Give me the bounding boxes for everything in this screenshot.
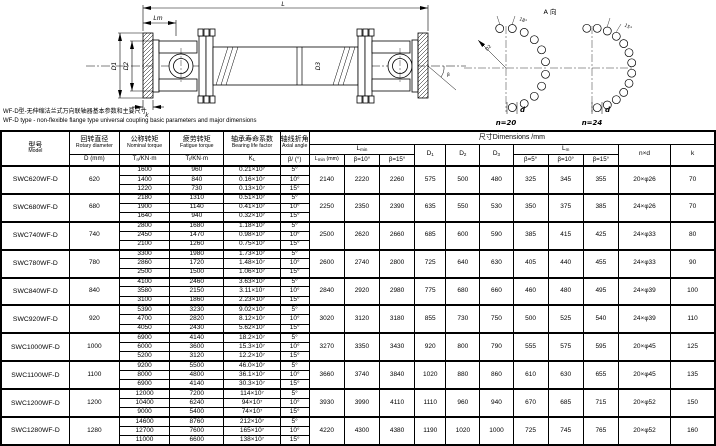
k-cell: 90 [671,250,715,278]
lm-b5-cell: 500 [513,305,548,333]
caption-chinese: WF-D型-无伸缩法兰式万向联轴器基本参数和主要尺寸 [3,108,147,116]
fatigue-torque-cell: 730 [170,185,224,194]
header-nominal-torque: 公称转矩 Nominal torque [119,131,169,154]
axial-angle-cell: 5° [280,333,309,342]
tube [213,47,358,85]
axial-angle-cell: 10° [280,259,309,268]
lm-b10-cell: 375 [548,194,583,222]
bearing-life-factor-cell: 1.73×10⁷ [224,250,280,259]
d3-cell: 590 [480,222,513,250]
model-cell: SWC740WF-D [1,222,69,250]
lm-b10-cell: 685 [548,389,583,417]
nominal-torque-cell: 2180 [119,194,169,203]
bearing-life-factor-cell: 36.1×10⁷ [224,371,280,380]
lmin-b15-cell: 4380 [380,417,415,445]
header-d2: D2 [446,144,480,166]
bearing-life-factor-cell: 3.11×10⁷ [224,287,280,296]
header-bearing-symbol: KL [224,154,280,166]
rotary-diameter-cell: 680 [69,194,119,222]
d3-cell: 1000 [480,417,513,445]
lmin-cell: 3270 [309,333,344,361]
header-row-1: 型号 Model 回转直径 Rotary diameter 公称转矩 Nomin… [1,131,715,144]
k-cell: 160 [671,417,715,445]
axial-angle-cell: 5° [280,278,309,287]
lm-b15-cell: 425 [583,222,618,250]
fatigue-torque-cell: 5400 [170,408,224,417]
header-lm-b15: β=15° [583,154,618,166]
fatigue-torque-cell: 1980 [170,250,224,259]
bearing-life-factor-cell: 2.23×10⁷ [224,296,280,305]
nominal-torque-cell: 5200 [119,352,169,361]
bolt-spec-cell: 20×φ52 [618,417,670,445]
header-lmin-b10: β=10° [344,154,379,166]
d2-cell: 730 [446,305,480,333]
bearing-life-factor-cell: 94×10⁷ [224,398,280,407]
lmin-b15-cell: 2390 [380,194,415,222]
d1-cell: 1190 [415,417,446,445]
lm-b10-cell: 630 [548,361,583,389]
rotary-diameter-cell: 1100 [69,361,119,389]
fatigue-torque-cell: 1680 [170,222,224,231]
axial-angle-cell: 15° [280,296,309,305]
d2-cell: 680 [446,278,480,306]
lm-b5-cell: 405 [513,250,548,278]
axial-angle-cell: 5° [280,389,309,398]
d3-cell: 660 [480,278,513,306]
fatigue-torque-cell: 4800 [170,371,224,380]
fatigue-torque-cell: 8760 [170,417,224,426]
header-rotary-en: Rotary diameter [70,144,119,149]
lmin-b15-cell: 3430 [380,333,415,361]
fatigue-torque-cell: 1500 [170,268,224,277]
d2-cell: 600 [446,222,480,250]
lmin-cell: 3660 [309,361,344,389]
lmin-cell: 3020 [309,305,344,333]
lm-b15-cell: 540 [583,305,618,333]
fatigue-torque-cell: 3230 [170,305,224,314]
lmin-b10-cell: 2220 [344,166,379,194]
bearing-life-factor-cell: 0.32×10⁷ [224,212,280,221]
fatigue-torque-cell: 1310 [170,194,224,203]
d3-cell: 530 [480,194,513,222]
lmin-b15-cell: 4110 [380,389,415,417]
dimension-D1 [118,33,143,98]
bearing-life-factor-cell: 138×10⁷ [224,436,280,445]
dimension-L [143,5,428,31]
rotary-diameter-cell: 1000 [69,333,119,361]
header-rotary-diameter: 回转直径 Rotary diameter [69,131,119,154]
lm-b5-cell: 555 [513,333,548,361]
bearing-life-factor-cell: 1.06×10⁷ [224,268,280,277]
axial-angle-cell: 10° [280,398,309,407]
nominal-torque-cell: 3580 [119,287,169,296]
nominal-torque-cell: 4100 [119,278,169,287]
nominal-torque-cell: 4700 [119,315,169,324]
axial-angle-cell: 5° [280,194,309,203]
lmin-b15-cell: 3180 [380,305,415,333]
bearing-life-factor-cell: 0.75×10⁷ [224,240,280,249]
header-nominal-symbol: Tn/KN·m [119,154,169,166]
lmin-b10-cell: 3740 [344,361,379,389]
fatigue-torque-cell: 7200 [170,389,224,398]
fatigue-torque-cell: 3600 [170,343,224,352]
lmin-cell: 2600 [309,250,344,278]
k-cell: 150 [671,389,715,417]
header-k: k [671,144,715,166]
model-cell: SWC620WF-D [1,166,69,194]
dim-L-label: L [281,1,284,8]
fatigue-torque-cell: 4140 [170,380,224,389]
lm-b5-cell: 610 [513,361,548,389]
lm-b15-cell: 765 [583,417,618,445]
left-bolt-flanges [198,29,215,103]
header-lmin-mm: Lmin (mm) [309,154,344,166]
nominal-torque-cell: 12700 [119,426,169,435]
bearing-life-factor-cell: 1.48×10⁷ [224,259,280,268]
dim-D3-label: D3 [315,62,322,71]
nominal-torque-cell: 10400 [119,398,169,407]
header-fatigue-torque: 疲劳转矩 Fatigue torque [170,131,224,154]
k-cell: 70 [671,194,715,222]
lmin-b15-cell: 2660 [380,222,415,250]
model-cell: SWC1280WF-D [1,417,69,445]
left-flange [143,33,153,98]
axial-angle-cell: 15° [280,240,309,249]
k-cell: 80 [671,222,715,250]
bolt-spec-cell: 20×φ45 [618,361,670,389]
axial-angle-cell: 15° [280,380,309,389]
nominal-torque-cell: 1600 [119,166,169,175]
bearing-life-factor-cell: 114×10⁷ [224,389,280,398]
bearing-life-factor-cell: 0.98×10⁷ [224,231,280,240]
bearing-life-factor-cell: 8.12×10⁷ [224,315,280,324]
d1-cell: 685 [415,222,446,250]
table-row: SWC680WF-D680218013100.51×10⁷5°225023502… [1,194,715,203]
model-cell: SWC920WF-D [1,305,69,333]
nominal-torque-cell: 9200 [119,361,169,370]
model-cell: SWC1100WF-D [1,361,69,389]
dim-D1-label: D1 [111,62,118,70]
lmin-b10-cell: 2740 [344,250,379,278]
axial-angle-cell: 5° [280,166,309,175]
axial-angle-cell: 10° [280,231,309,240]
model-cell: SWC840WF-D [1,278,69,306]
fatigue-torque-cell: 6600 [170,436,224,445]
header-lmin-b15: β=15° [380,154,415,166]
d3-cell: 860 [480,361,513,389]
fatigue-torque-cell: 1470 [170,231,224,240]
header-model-en: Model [2,149,69,154]
fatigue-torque-cell: 2430 [170,324,224,333]
nominal-torque-cell: 6900 [119,333,169,342]
axial-angle-cell: 10° [280,203,309,212]
nominal-torque-cell: 6000 [119,343,169,352]
axial-angle-cell: 10° [280,371,309,380]
nominal-torque-cell: 2800 [119,222,169,231]
d1-cell: 775 [415,278,446,306]
bolt-spec-cell: 20×φ52 [618,389,670,417]
d3-cell: 750 [480,305,513,333]
bearing-life-factor-cell: 1.18×10⁷ [224,222,280,231]
lm-b10-cell: 745 [548,417,583,445]
bearing-life-factor-cell: 0.51×10⁷ [224,194,280,203]
bolt-spec-cell: 24×φ33 [618,222,670,250]
lmin-b15-cell: 3840 [380,361,415,389]
d2-cell: 1020 [446,417,480,445]
header-bearing-life: 轴承寿命系数 Bearing life factor [224,131,280,154]
lmin-b10-cell: 4300 [344,417,379,445]
bolt-spec-cell: 24×φ33 [618,250,670,278]
angle-indicator [428,66,456,90]
bolt-spec-cell: 24×φ39 [618,305,670,333]
parameters-table: 型号 Model 回转直径 Rotary diameter 公称转矩 Nomin… [0,130,716,446]
nominal-torque-cell: 4050 [119,324,169,333]
axial-angle-cell: 15° [280,212,309,221]
axial-angle-cell: 5° [280,361,309,370]
rotary-diameter-cell: 1280 [69,417,119,445]
n24-label: n=24 [582,119,603,127]
bearing-life-factor-cell: 0.21×10⁷ [224,166,280,175]
bearing-life-factor-cell: 212×10⁷ [224,417,280,426]
bearing-life-factor-cell: 0.16×10⁷ [224,175,280,184]
nominal-torque-cell: 2100 [119,240,169,249]
lm-b15-cell: 495 [583,278,618,306]
nominal-torque-cell: 14600 [119,417,169,426]
rotary-diameter-cell: 1200 [69,389,119,417]
rotary-diameter-cell: 780 [69,250,119,278]
bearing-life-factor-cell: 18.2×10⁷ [224,333,280,342]
fatigue-torque-cell: 840 [170,175,224,184]
a-view-label: A 向 [543,7,556,16]
nominal-torque-cell: 5390 [119,305,169,314]
beta-label: β [447,72,450,78]
fatigue-torque-cell: 2460 [170,278,224,287]
nominal-torque-cell: 12000 [119,389,169,398]
nominal-torque-cell: 8000 [119,371,169,380]
fatigue-torque-cell: 5500 [170,361,224,370]
nominal-torque-cell: 9000 [119,408,169,417]
nominal-torque-cell: 11000 [119,436,169,445]
k-cell: 125 [671,333,715,361]
k-cell: 110 [671,305,715,333]
lm-b5-cell: 385 [513,222,548,250]
bolt-circle-n20: D2 18° d n=20 [464,16,550,127]
header-axial-angle: 轴线折角 Axial angle [280,131,309,154]
lm-b5-cell: 325 [513,166,548,194]
nominal-torque-cell: 1900 [119,203,169,212]
lm-b10-cell: 575 [548,333,583,361]
bearing-life-factor-cell: 15.3×10⁷ [224,343,280,352]
bearing-life-factor-cell: 74×10⁷ [224,408,280,417]
lmin-b15-cell: 2800 [380,250,415,278]
d1-cell: 920 [415,333,446,361]
header-fatigue-en: Fatigue torque [170,144,223,149]
k-cell: 135 [671,361,715,389]
bolt-circle-n24: 15° d n=24 [550,18,636,127]
lmin-b10-cell: 2920 [344,278,379,306]
lmin-cell: 2140 [309,166,344,194]
lm-b10-cell: 415 [548,222,583,250]
d2-cell: 500 [446,166,480,194]
right-bolt-flanges [357,29,374,103]
d2-cell: 640 [446,250,480,278]
table-row: SWC1000WF-D10006900414018.2×10⁷5°3270335… [1,333,715,342]
lm-b15-cell: 455 [583,250,618,278]
fatigue-torque-cell: 1720 [170,259,224,268]
axial-angle-cell: 10° [280,287,309,296]
header-fatigue-symbol: Tf/KN·m [170,154,224,166]
lmin-b15-cell: 2260 [380,166,415,194]
header-d1: D1 [415,144,446,166]
d2-cell: 880 [446,361,480,389]
bearing-life-factor-cell: 165×10⁷ [224,426,280,435]
axial-angle-cell: 15° [280,268,309,277]
axial-angle-cell: 15° [280,352,309,361]
rotary-diameter-cell: 620 [69,166,119,194]
d2-cell: 960 [446,389,480,417]
fatigue-torque-cell: 7600 [170,426,224,435]
axial-angle-cell: 15° [280,436,309,445]
fatigue-torque-cell: 6240 [170,398,224,407]
bearing-life-factor-cell: 0.41×10⁷ [224,203,280,212]
d2-cell: 800 [446,333,480,361]
lm-b5-cell: 725 [513,417,548,445]
d1-cell: 1110 [415,389,446,417]
lm-b5-cell: 350 [513,194,548,222]
nominal-torque-cell: 1640 [119,212,169,221]
axial-angle-cell: 10° [280,426,309,435]
lmin-b10-cell: 2350 [344,194,379,222]
bearing-life-factor-cell: 30.3×10⁷ [224,380,280,389]
table-header: 型号 Model 回转直径 Rotary diameter 公称转矩 Nomin… [1,131,715,166]
left-flange-plate [153,40,159,92]
fatigue-torque-cell: 1860 [170,296,224,305]
axial-angle-cell: 5° [280,305,309,314]
right-flange [418,33,428,98]
nominal-torque-cell: 3300 [119,250,169,259]
datasheet-page: { "captions": { "cn": "WF-D型-无伸缩法兰式万向联轴器… [0,0,716,446]
lm-b10-cell: 440 [548,250,583,278]
caption-english: WF-D type - non-flexible flange type uni… [3,117,256,125]
header-nominal-en: Nominal torque [120,144,169,149]
header-rotary-symbol: D (mm) [69,154,119,166]
lmin-b10-cell: 3990 [344,389,379,417]
fatigue-torque-cell: 3120 [170,352,224,361]
header-bearing-en: Bearing life factor [224,144,279,149]
model-cell: SWC680WF-D [1,194,69,222]
lmin-cell: 2840 [309,278,344,306]
lmin-b10-cell: 3350 [344,333,379,361]
header-lm-b10: β=10° [548,154,583,166]
table-row: SWC740WF-D740280016801.18×10⁷5°250026202… [1,222,715,231]
lm-b15-cell: 655 [583,361,618,389]
bearing-life-factor-cell: 12.2×10⁷ [224,352,280,361]
lm-b10-cell: 345 [548,166,583,194]
header-d3: D3 [480,144,513,166]
lm-b15-cell: 355 [583,166,618,194]
lm-b15-cell: 385 [583,194,618,222]
header-nxd: n×d [618,144,670,166]
axial-angle-cell: 5° [280,417,309,426]
bearing-life-factor-cell: 3.63×10⁷ [224,278,280,287]
bearing-life-factor-cell: 46.0×10⁷ [224,361,280,370]
fatigue-torque-cell: 960 [170,166,224,175]
d3-cell: 630 [480,250,513,278]
header-lmin-group: Lmin [309,144,414,154]
table-body: SWC620WF-D62016009600.21×10⁷5°2140222022… [1,166,715,445]
lm-b15-cell: 595 [583,333,618,361]
header-lm-b5: β=5° [513,154,548,166]
nominal-torque-cell: 2450 [119,231,169,240]
table-row: SWC780WF-D780330019801.73×10⁷5°260027402… [1,250,715,259]
d1-cell: 575 [415,166,446,194]
nominal-torque-cell: 6900 [119,380,169,389]
lmin-b15-cell: 2980 [380,278,415,306]
axial-angle-cell: 10° [280,343,309,352]
table-row: SWC920WF-D920539032309.02×10⁷5°302031203… [1,305,715,314]
hole-angle-n20-label: 18° [518,16,528,25]
header-row-3: D (mm) Tn/KN·m Tf/KN·m KL β/ (°) Lmin (m… [1,154,715,166]
table-row: SWC1100WF-D11009200550046.0×10⁷5°3660374… [1,361,715,370]
lmin-cell: 2250 [309,194,344,222]
header-angle-symbol: β/ (°) [280,154,309,166]
d1-cell: 725 [415,250,446,278]
lm-b5-cell: 670 [513,389,548,417]
table-row: SWC1200WF-D1200120007200114×10⁷5°3930399… [1,389,715,398]
bearing-life-factor-cell: 5.62×10⁷ [224,324,280,333]
table-row: SWC1280WF-D1280146008760212×10⁷5°4220430… [1,417,715,426]
axial-angle-cell: 5° [280,222,309,231]
n20-label: n=20 [496,119,517,127]
header-angle-en: Axial angle [281,144,309,149]
lmin-cell: 2500 [309,222,344,250]
bearing-life-factor-cell: 0.13×10⁷ [224,185,280,194]
nominal-torque-cell: 2500 [119,268,169,277]
lmin-cell: 4220 [309,417,344,445]
fatigue-torque-cell: 2820 [170,315,224,324]
k-cell: 100 [671,278,715,306]
nominal-torque-cell: 1220 [119,185,169,194]
d1-cell: 1020 [415,361,446,389]
fatigue-torque-cell: 1140 [170,203,224,212]
axial-angle-cell: 15° [280,408,309,417]
header-dimensions-title: 尺寸Dimensions /mm [309,131,715,144]
bearing-life-factor-cell: 9.02×10⁷ [224,305,280,314]
lmin-b10-cell: 3120 [344,305,379,333]
fatigue-torque-cell: 4140 [170,333,224,342]
bolt-circle-ref-label: D2 [484,44,493,53]
model-cell: SWC780WF-D [1,250,69,278]
nominal-torque-cell: 1400 [119,175,169,184]
nominal-torque-cell: 3100 [119,296,169,305]
d3-cell: 480 [480,166,513,194]
rotary-diameter-cell: 920 [69,305,119,333]
table-row: SWC620WF-D62016009600.21×10⁷5°2140222022… [1,166,715,175]
bolt-spec-cell: 24×φ39 [618,278,670,306]
header-lm-group: Lm [513,144,618,154]
axial-angle-cell: 10° [280,315,309,324]
model-cell: SWC1000WF-D [1,333,69,361]
rotary-diameter-cell: 740 [69,222,119,250]
fatigue-torque-cell: 940 [170,212,224,221]
dim-D2-label: D2 [123,62,130,71]
d1-cell: 635 [415,194,446,222]
lm-b5-cell: 460 [513,278,548,306]
axial-angle-cell: 10° [280,175,309,184]
nominal-torque-cell: 2860 [119,259,169,268]
k-cell: 70 [671,166,715,194]
axial-angle-cell: 15° [280,324,309,333]
